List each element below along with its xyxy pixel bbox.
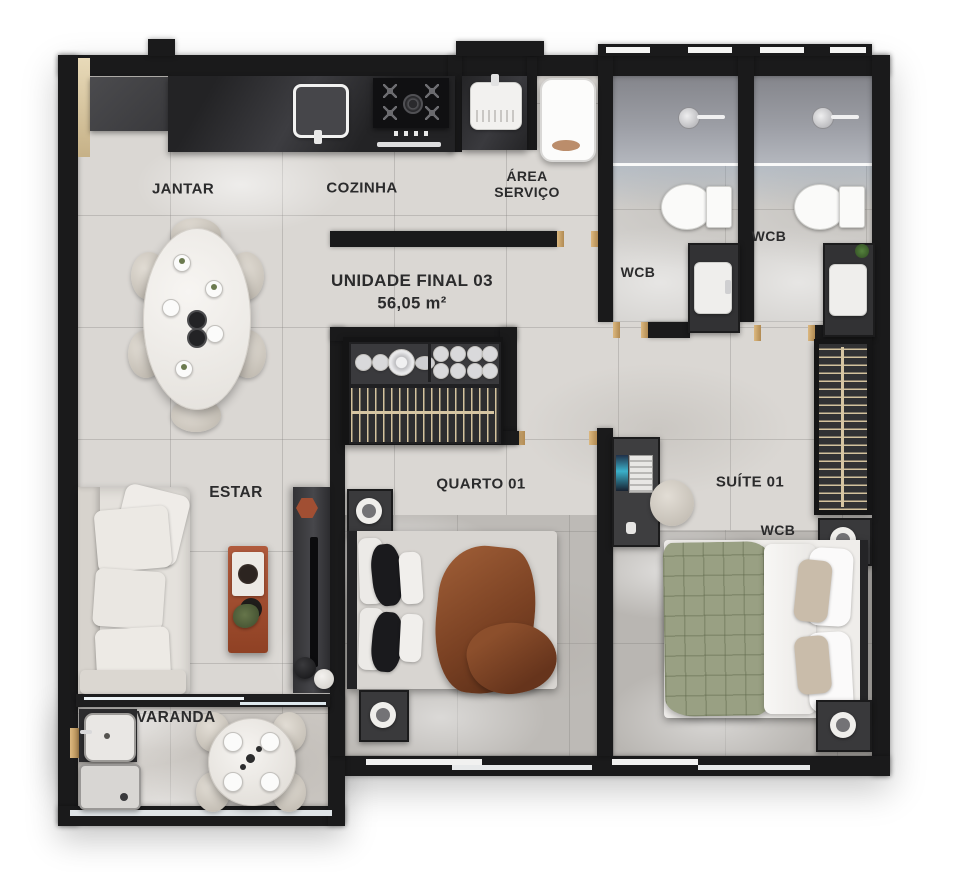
wall-wcb1-left [598, 55, 613, 322]
kitchen-sink-faucet [314, 130, 322, 144]
door-jamb-wcb1-b [641, 322, 648, 338]
lamp-quarto-top [356, 498, 382, 524]
varanda-dryer [79, 764, 141, 810]
shelf-plate-r3 [467, 346, 483, 362]
unit-title: UNIDADE FINAL 03 [331, 271, 493, 291]
wall-stub-servico-washer [527, 57, 537, 150]
stove-burner-4 [425, 106, 439, 120]
dining-centerpiece-2 [187, 328, 207, 348]
room-label-quarto: QUARTO 01 [436, 475, 525, 492]
sideboard-bowl [238, 564, 258, 584]
desk-cup [626, 522, 636, 534]
toilet-tank-wcb2 [839, 186, 865, 228]
door-trim-varanda-left [70, 728, 79, 758]
shelf-plate-r1 [433, 346, 449, 362]
unit-area: 56,05 m² [377, 295, 446, 314]
wall-stub-top-left [148, 39, 175, 56]
varanda-faucet [80, 730, 92, 734]
bed-suite-headboard [860, 540, 868, 718]
dining-plate-3 [162, 299, 180, 317]
varanda-dryer-knob [120, 793, 128, 801]
sliding-door-glass-2 [240, 702, 326, 705]
fridge [90, 77, 168, 131]
sofa-armrest [80, 670, 186, 694]
stove-knobs [394, 131, 430, 136]
wardrobe-quarto-rod [352, 411, 494, 414]
room-label-varanda: VARANDA [136, 709, 215, 727]
laptop-screen [616, 455, 628, 491]
shelf-plate-r6 [450, 363, 466, 379]
shelf-plate-large [388, 349, 415, 376]
sliding-door-frame [76, 694, 330, 707]
window-suite-b [698, 765, 810, 770]
window-top-wcb2-b [830, 47, 866, 53]
varanda-sink [84, 713, 136, 762]
varanda-sink-drain [104, 733, 110, 739]
varanda-center-deco-3 [240, 764, 246, 770]
room-label-suite-wcb: WCB [761, 522, 796, 538]
varanda-plate-1 [223, 732, 243, 752]
desk-chair [650, 480, 694, 526]
dining-sprig-2 [211, 284, 217, 290]
sliding-door-glass-1 [84, 697, 244, 700]
wall-top [58, 55, 890, 76]
pillow-suite-beige-2 [794, 635, 833, 696]
pouf-white [314, 669, 334, 689]
shelf-plate-1 [355, 354, 372, 371]
pillow-suite-beige-1 [793, 558, 833, 623]
varanda-plate-2 [260, 732, 280, 752]
wall-wcb-divider [738, 55, 754, 322]
stove-burner-3 [383, 106, 397, 120]
dining-sprig-1 [179, 258, 185, 264]
door-jamb-wcb1-a [613, 322, 620, 338]
wall-stub-top-servico [456, 41, 544, 56]
stove-burner-2 [425, 84, 439, 98]
faucet-wcb1 [725, 280, 731, 294]
floor-plan: JANTAR COZINHA ÁREA SERVIÇO WCB WCB UNID… [0, 0, 963, 872]
shelf-plate-r2 [450, 346, 466, 362]
door-jamb-wcb2-a [754, 325, 761, 341]
door-jamb-quarto-b [589, 431, 597, 445]
window-left-trim [78, 58, 90, 157]
bed-quarto-headboard [347, 531, 357, 689]
room-label-estar: ESTAR [209, 484, 262, 502]
wall-wcb1-bottom [648, 322, 690, 338]
varanda-plate-3 [223, 772, 243, 792]
dining-centerpiece-1 [187, 310, 207, 330]
window-quarto-b [452, 765, 592, 770]
wall-left [58, 55, 78, 826]
window-suite [612, 759, 698, 765]
shelf-plate-2 [372, 354, 389, 371]
shower-arm-wcb1 [697, 115, 725, 119]
shelf-plate-r7 [467, 363, 483, 379]
door-jamb-hall-b [591, 231, 598, 247]
shelf-plate-r5 [433, 363, 449, 379]
sink-wcb2 [829, 264, 867, 316]
pillow-quarto-small-2 [399, 613, 423, 662]
room-label-jantar: JANTAR [152, 180, 214, 197]
window-top-wcb1-a [606, 47, 650, 53]
wardrobe-shelf-divider [428, 342, 431, 382]
washing-machine-basket [552, 140, 580, 151]
stove-burner-center [403, 94, 423, 114]
room-label-wcb1: WCB [621, 264, 656, 280]
tv-screen [310, 537, 318, 667]
sofa-cushion-2 [92, 568, 166, 631]
wall-quarto-suite-divider [597, 428, 613, 756]
dining-sprig-3 [181, 364, 187, 370]
varanda-center-deco-2 [256, 746, 262, 752]
laundry-tank-faucet [491, 74, 499, 86]
door-jamb-hall-a [557, 231, 564, 247]
blanket-suite-green [662, 541, 773, 717]
stove-burner-1 [383, 84, 397, 98]
laptop-keyboard [629, 455, 653, 493]
laundry-tank-ribs [476, 110, 514, 122]
room-label-cozinha: COZINHA [326, 179, 397, 196]
shower-arm-wcb2 [831, 115, 859, 119]
plant-wcb2 [855, 244, 869, 258]
shelf-plate-r4 [482, 346, 498, 362]
room-label-suite: SUÍTE 01 [716, 473, 784, 490]
window-top-wcb2-a [760, 47, 804, 53]
room-label-wcb2: WCB [752, 228, 787, 244]
dining-plate-4 [206, 325, 224, 343]
shelf-bowl [415, 356, 435, 370]
wardrobe-quarto-hangers [349, 386, 501, 444]
window-top-wcb1-b [688, 47, 732, 53]
pouf-black [294, 657, 316, 679]
varanda-plate-4 [260, 772, 280, 792]
varanda-center-deco-1 [246, 754, 255, 763]
oven-handle [377, 142, 441, 147]
shower-floor-wcb1 [613, 76, 738, 164]
wall-right [872, 55, 890, 776]
shelf-plate-r8 [482, 363, 498, 379]
lamp-suite-bottom [830, 712, 856, 738]
toilet-tank-wcb1 [706, 186, 732, 228]
laundry-tank-sink [470, 82, 522, 130]
room-label-area-servico: ÁREA SERVIÇO [481, 168, 573, 200]
wardrobe-suite-rod [841, 347, 844, 507]
lamp-quarto-bottom [370, 702, 396, 728]
pillow-quarto-small-1 [398, 551, 424, 604]
wall-cozinha-bottom [330, 231, 557, 247]
sofa-cushion-1 [93, 505, 172, 573]
